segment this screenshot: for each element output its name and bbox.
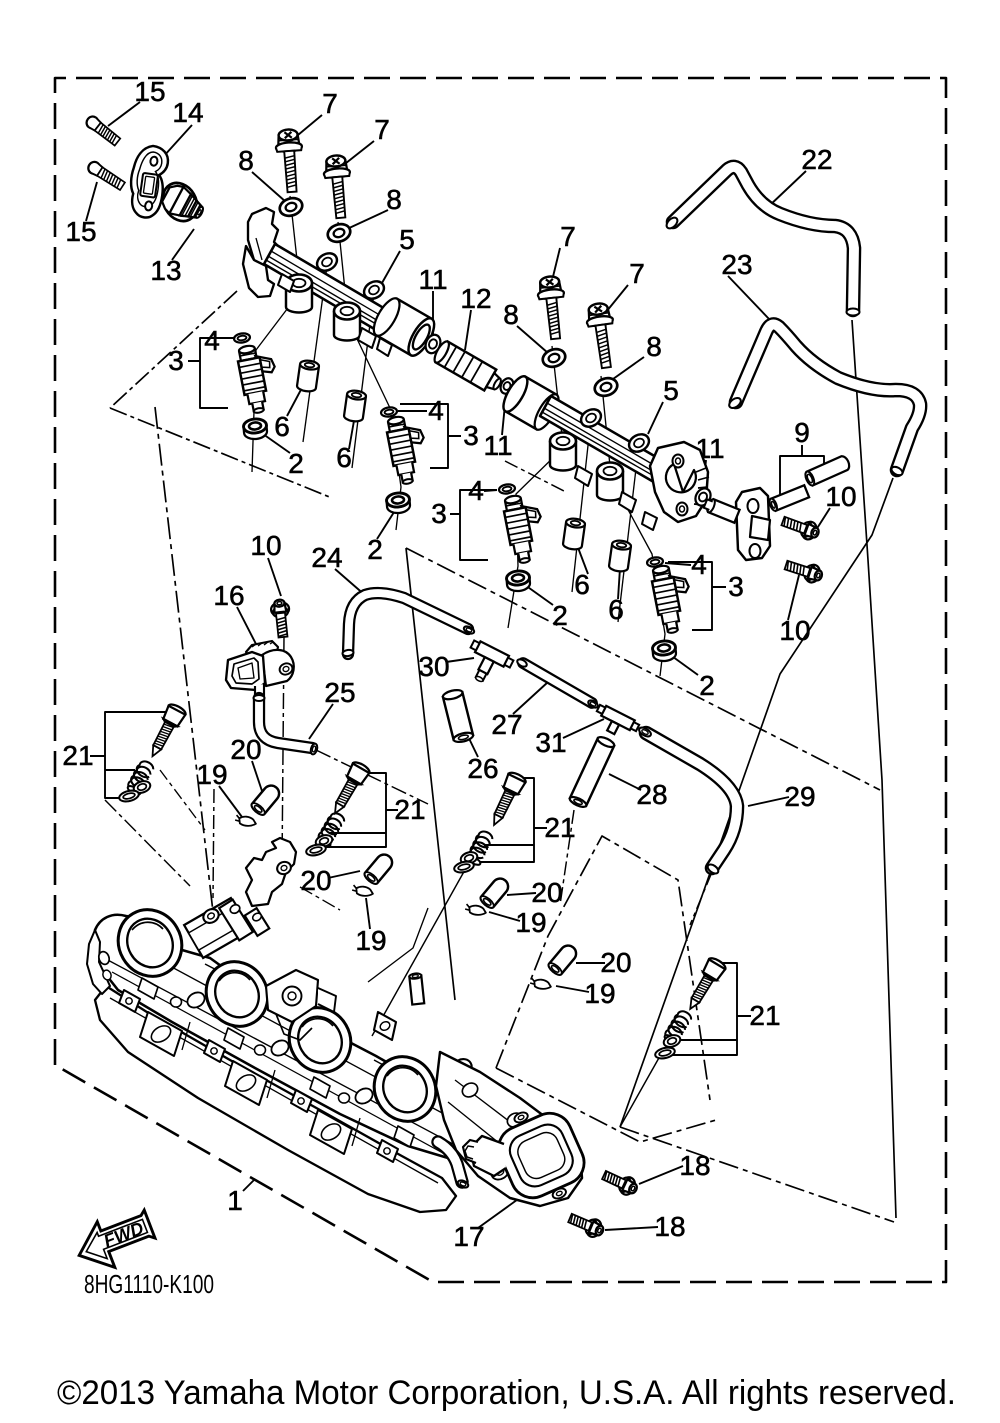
svg-text:6: 6 [608, 594, 624, 625]
svg-text:21: 21 [62, 740, 93, 771]
svg-text:19: 19 [584, 978, 615, 1009]
svg-text:10: 10 [250, 530, 281, 561]
svg-text:20: 20 [300, 865, 331, 896]
svg-text:2: 2 [367, 534, 383, 565]
svg-text:12: 12 [460, 283, 491, 314]
svg-text:16: 16 [213, 580, 244, 611]
svg-text:7: 7 [374, 114, 390, 145]
svg-text:7: 7 [322, 88, 338, 119]
svg-text:7: 7 [560, 221, 576, 252]
svg-text:6: 6 [574, 569, 590, 600]
svg-text:7: 7 [629, 258, 645, 289]
svg-text:27: 27 [491, 709, 522, 740]
svg-text:22: 22 [801, 144, 832, 175]
svg-text:3: 3 [463, 420, 479, 451]
svg-text:8: 8 [503, 299, 519, 330]
svg-text:24: 24 [311, 542, 342, 573]
svg-text:6: 6 [274, 411, 290, 442]
svg-text:21: 21 [749, 1000, 780, 1031]
svg-text:23: 23 [721, 249, 752, 280]
svg-text:17: 17 [453, 1221, 484, 1252]
svg-text:21: 21 [394, 794, 425, 825]
svg-text:18: 18 [654, 1211, 685, 1242]
svg-text:2: 2 [699, 670, 715, 701]
svg-text:9: 9 [794, 417, 810, 448]
svg-text:5: 5 [663, 375, 679, 406]
svg-text:4: 4 [204, 325, 220, 356]
svg-text:8: 8 [646, 331, 662, 362]
svg-text:4: 4 [691, 549, 707, 580]
svg-text:28: 28 [636, 779, 667, 810]
svg-text:19: 19 [355, 925, 386, 956]
svg-text:10: 10 [825, 481, 856, 512]
svg-text:21: 21 [544, 812, 575, 843]
svg-text:3: 3 [168, 345, 184, 376]
svg-text:31: 31 [535, 727, 566, 758]
svg-text:11: 11 [483, 430, 512, 461]
svg-text:26: 26 [467, 753, 498, 784]
svg-text:8: 8 [386, 184, 402, 215]
svg-text:15: 15 [134, 76, 165, 107]
svg-text:1: 1 [227, 1185, 243, 1216]
svg-text:15: 15 [65, 216, 96, 247]
svg-text:14: 14 [172, 97, 203, 128]
svg-text:2: 2 [288, 448, 304, 479]
svg-text:8: 8 [238, 145, 254, 176]
svg-text:19: 19 [196, 759, 227, 790]
svg-text:20: 20 [531, 877, 562, 908]
svg-text:20: 20 [230, 734, 261, 765]
svg-text:30: 30 [418, 651, 449, 682]
svg-text:4: 4 [468, 475, 484, 506]
svg-text:©2013 Yamaha Motor Corporation: ©2013 Yamaha Motor Corporation, U.S.A. A… [57, 1374, 956, 1412]
svg-text:3: 3 [431, 498, 447, 529]
svg-text:6: 6 [336, 442, 352, 473]
svg-text:25: 25 [324, 677, 355, 708]
svg-text:20: 20 [600, 947, 631, 978]
svg-text:5: 5 [399, 224, 415, 255]
svg-text:3: 3 [728, 571, 744, 602]
svg-text:2: 2 [552, 600, 568, 631]
svg-text:19: 19 [515, 907, 546, 938]
svg-text:13: 13 [150, 255, 181, 286]
svg-text:8HG1110-K100: 8HG1110-K100 [84, 1269, 214, 1299]
svg-text:18: 18 [679, 1150, 710, 1181]
svg-text:29: 29 [784, 781, 815, 812]
svg-text:11: 11 [418, 264, 447, 295]
svg-text:4: 4 [428, 395, 444, 426]
svg-text:10: 10 [779, 615, 810, 646]
